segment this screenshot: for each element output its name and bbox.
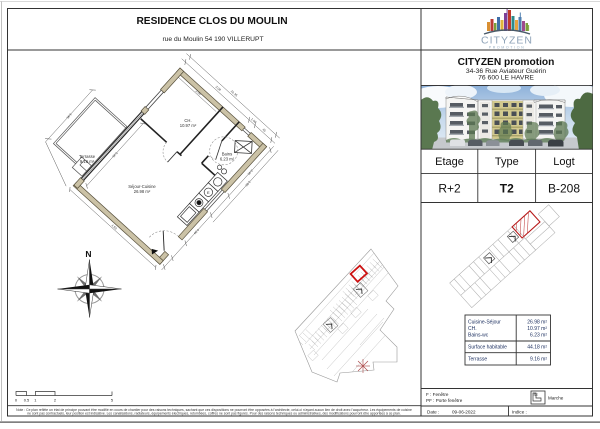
svg-text:Cuisine-Séjour: Cuisine-Séjour bbox=[468, 320, 501, 326]
svg-text:R+2: R+2 bbox=[438, 182, 461, 196]
svg-text:Indice :: Indice : bbox=[512, 409, 527, 414]
svg-text:Logt: Logt bbox=[553, 156, 574, 168]
svg-text:10.97 m²: 10.97 m² bbox=[180, 123, 197, 128]
svg-text:Date :: Date : bbox=[427, 409, 439, 414]
svg-text:9.16 m²: 9.16 m² bbox=[530, 357, 547, 363]
svg-text:CITYZEN promotion: CITYZEN promotion bbox=[458, 57, 555, 68]
svg-text:Terrasse: Terrasse bbox=[468, 357, 487, 363]
svg-text:N: N bbox=[85, 249, 91, 259]
svg-text:26.98 m²: 26.98 m² bbox=[134, 189, 151, 194]
svg-text:RESIDENCE CLOS DU MOULIN: RESIDENCE CLOS DU MOULIN bbox=[136, 16, 287, 27]
svg-text:SE: SE bbox=[534, 393, 539, 397]
svg-text:B-208: B-208 bbox=[548, 182, 580, 196]
svg-text:Type: Type bbox=[495, 156, 519, 168]
svg-text:E: E bbox=[207, 190, 210, 195]
svg-text:76 600 LE HAVRE: 76 600 LE HAVRE bbox=[478, 75, 534, 82]
svg-text:09-06-2022: 09-06-2022 bbox=[452, 409, 476, 414]
svg-text:Etage: Etage bbox=[435, 156, 464, 168]
svg-text:9.16 m²: 9.16 m² bbox=[80, 159, 95, 164]
svg-text:T2: T2 bbox=[500, 182, 514, 196]
svg-text:6.23 m²: 6.23 m² bbox=[530, 333, 547, 339]
svg-text:0.5: 0.5 bbox=[24, 398, 30, 403]
svg-text:10.97 m²: 10.97 m² bbox=[527, 326, 547, 332]
svg-text:44.18 m²: 44.18 m² bbox=[527, 345, 547, 351]
svg-text:PF : Porte fenêtre: PF : Porte fenêtre bbox=[426, 398, 463, 403]
svg-text:6.23 m²: 6.23 m² bbox=[220, 157, 235, 162]
svg-text:ne sont pas contractuels, leur: ne sont pas contractuels, leur position … bbox=[27, 411, 401, 415]
svg-text:PROMOTION: PROMOTION bbox=[489, 46, 526, 50]
svg-text:Bains-wc: Bains-wc bbox=[468, 333, 489, 339]
svg-text:Marche: Marche bbox=[548, 396, 564, 401]
svg-text:26.98 m²: 26.98 m² bbox=[527, 320, 547, 326]
svg-text:Surface habitable: Surface habitable bbox=[468, 345, 507, 351]
svg-text:F : Fenêtre: F : Fenêtre bbox=[426, 392, 449, 397]
svg-text:CH.: CH. bbox=[468, 326, 477, 332]
svg-text:rue du Moulin 54 190 VILLERUPT: rue du Moulin 54 190 VILLERUPT bbox=[162, 36, 263, 43]
